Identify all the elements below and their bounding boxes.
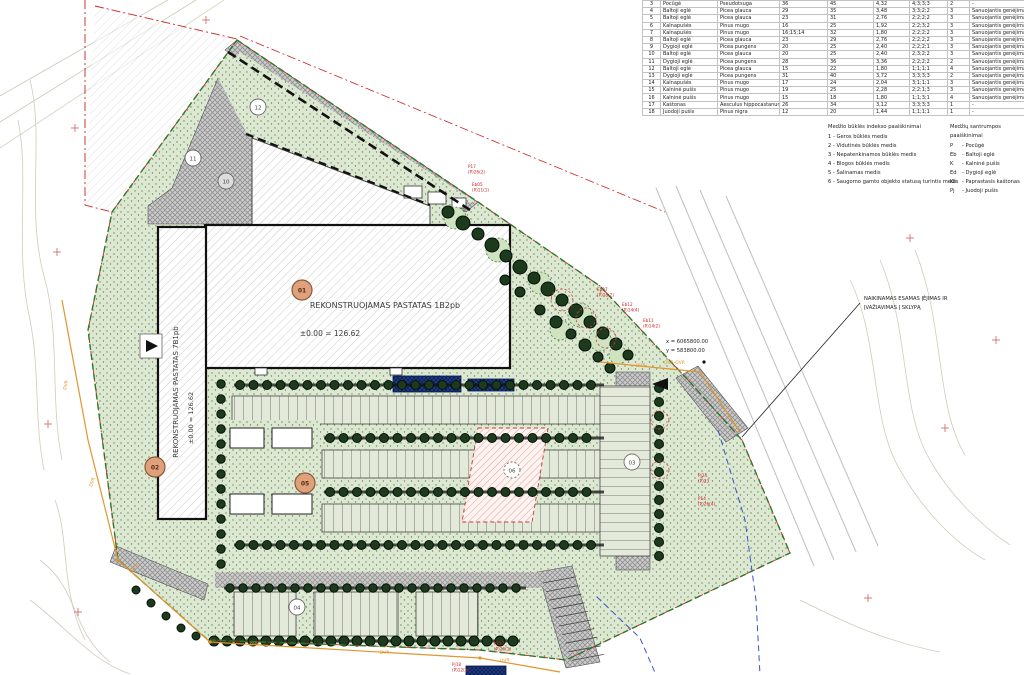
table-row: 7KalnapušėsPinus mugo16;15;14321,802;2;2… bbox=[643, 29, 1024, 36]
table-cell: Kalninė pušis bbox=[661, 94, 718, 101]
table-cell: Picea pungens bbox=[718, 72, 780, 79]
badge-06: 06 bbox=[504, 462, 520, 478]
badge-10: 10 bbox=[218, 173, 234, 189]
table-cell: Sanuojantis genėjimas bbox=[970, 51, 1024, 58]
svg-text:P14: P14 bbox=[698, 496, 706, 501]
table-cell: Picea pungens bbox=[718, 58, 780, 65]
table-cell: 25 bbox=[828, 51, 874, 58]
svg-text:(P)23: (P)23 bbox=[698, 479, 709, 484]
table-cell: 25 bbox=[828, 87, 874, 94]
table-cell: 4 bbox=[948, 94, 970, 101]
building-left-label: REKONSTRUOJAMAS PASTATAS 7B1pb bbox=[172, 326, 180, 458]
table-cell: 9 bbox=[643, 44, 661, 51]
table-cell: 1,92 bbox=[874, 22, 910, 29]
table-cell: Pinus mugo bbox=[718, 94, 780, 101]
annotation-leader bbox=[742, 303, 860, 437]
legend-item: 5 - Šalinamas medis bbox=[828, 169, 946, 178]
table-cell: Pinus mugo bbox=[718, 87, 780, 94]
site-plan-page: { "colors": { "badge_orange": "#dfa07c",… bbox=[0, 0, 1024, 675]
table-cell: 2;2;2;2 bbox=[910, 36, 948, 43]
svg-text:10: 10 bbox=[223, 180, 230, 186]
badge-12: 12 bbox=[250, 99, 266, 115]
table-cell: 3 bbox=[948, 8, 970, 15]
legend-item: K- Kalninė pušis bbox=[950, 160, 1024, 169]
table-cell: 15 bbox=[780, 65, 828, 72]
table-cell: 3 bbox=[948, 44, 970, 51]
table-row: 16Kalninė pušisPinus mugo15181,801;1;3;1… bbox=[643, 94, 1024, 101]
table-cell: Aesculus hippocastanum bbox=[718, 101, 780, 108]
table-cell: 23 bbox=[780, 36, 828, 43]
table-cell: 18 bbox=[828, 94, 874, 101]
table-cell: Pseudotsuga bbox=[718, 1, 780, 8]
table-cell: Sanuojantis genėjimas bbox=[970, 87, 1024, 94]
table-cell: 3,72 bbox=[874, 72, 910, 79]
table-cell: 8 bbox=[643, 36, 661, 43]
table-cell: 13 bbox=[643, 72, 661, 79]
svg-text:Eb05: Eb05 bbox=[472, 182, 483, 187]
legend-tree-condition: Medžio būklės indekso paaiškinimai 1 - G… bbox=[828, 123, 946, 187]
legend-abbr: K bbox=[950, 160, 962, 169]
table-cell: Sanuojantis genėjimas bbox=[970, 65, 1024, 72]
svg-text:Kš17: Kš17 bbox=[494, 641, 505, 646]
coordinate-x: x = 6065800.00 bbox=[666, 339, 708, 345]
table-cell: Kaštonas bbox=[661, 101, 718, 108]
legend-abbr: Eb bbox=[950, 151, 962, 160]
table-cell: Picea glauca bbox=[718, 65, 780, 72]
table-cell: 25 bbox=[828, 44, 874, 51]
legend-item: Kš- Paprastasis kaštonas bbox=[950, 178, 1024, 187]
table-row: 9Dygioji eglėPicea pungens20252,402;2;2;… bbox=[643, 44, 1024, 51]
badge-05: 05 bbox=[295, 473, 315, 493]
table-cell: Dygioji eglė bbox=[661, 44, 718, 51]
table-cell: 1;1;1;1 bbox=[910, 108, 948, 115]
table-cell: 36 bbox=[780, 1, 828, 8]
table-cell: 15 bbox=[780, 94, 828, 101]
building-main bbox=[205, 225, 510, 375]
table-cell: 2,40 bbox=[874, 44, 910, 51]
building-main-label: REKONSTRUOJAMAS PASTATAS 1B2pb bbox=[310, 301, 460, 310]
svg-text:(P)18(2): (P)18(2) bbox=[597, 293, 614, 298]
utility-dvr-label: DVR bbox=[380, 650, 390, 656]
table-cell: 3,48 bbox=[874, 8, 910, 15]
table-cell: 2 bbox=[948, 58, 970, 65]
legend-item: 2 - Vidutinės būklės medis bbox=[828, 142, 946, 151]
table-row: 4Baltoji eglėPicea glauca29353,483;3;2;2… bbox=[643, 8, 1024, 15]
svg-text:Eb11: Eb11 bbox=[643, 318, 654, 323]
table-cell: 6 bbox=[643, 22, 661, 29]
svg-text:(P)14(2): (P)14(2) bbox=[643, 324, 660, 329]
table-cell: 1;1;1;1 bbox=[910, 65, 948, 72]
svg-text:(P)12(1): (P)12(1) bbox=[452, 668, 469, 673]
table-cell: 3 bbox=[948, 29, 970, 36]
annotation-demolish-line2: ĮVAŽIAVIMAS Į SKLYPĄ bbox=[864, 303, 921, 311]
table-row: 15Kalninė pušisPinus mugo19252,282;2;1;3… bbox=[643, 87, 1024, 94]
legend-abbr: Kš bbox=[950, 178, 962, 187]
tree-tag: Eb11(P)14(2) bbox=[643, 318, 660, 329]
table-cell: 4 bbox=[948, 65, 970, 72]
table-row: 3PocūgėPseudotsuga36454,324;3;3;32- bbox=[643, 1, 1024, 8]
table-cell: Pocūgė bbox=[661, 1, 718, 8]
coordinate-y: y = 583800.00 bbox=[666, 348, 705, 354]
table-cell: 1 bbox=[948, 108, 970, 115]
table-cell: Sanuojantis genėjimas bbox=[970, 8, 1024, 15]
table-row: 12Baltoji eglėPicea glauca15221,801;1;1;… bbox=[643, 65, 1024, 72]
table-cell: 1,80 bbox=[874, 94, 910, 101]
tree-inventory-table: 3PocūgėPseudotsuga36454,324;3;3;32-4Balt… bbox=[642, 0, 1024, 116]
table-cell: 19 bbox=[780, 87, 828, 94]
table-cell: 17 bbox=[780, 80, 828, 87]
table-cell: 1,80 bbox=[874, 29, 910, 36]
table-cell: 3;3;3;3 bbox=[910, 101, 948, 108]
svg-text:Pj18: Pj18 bbox=[452, 662, 461, 667]
table-row: 5Baltoji eglėPicea glauca23312,762;2;2;2… bbox=[643, 15, 1024, 22]
table-cell: Kalninė pušis bbox=[661, 87, 718, 94]
table-cell: 22 bbox=[828, 65, 874, 72]
table-cell: 28 bbox=[780, 58, 828, 65]
badge-03: 03 bbox=[624, 454, 640, 470]
table-cell: Baltoji eglė bbox=[661, 51, 718, 58]
table-cell: 15 bbox=[643, 87, 661, 94]
table-cell: 2;2;2;2 bbox=[910, 15, 948, 22]
table-cell: 3,36 bbox=[874, 58, 910, 65]
tree-tag: Pj18(P)12(1) bbox=[452, 662, 469, 673]
table-cell: Sanuojantis genėjimas bbox=[970, 15, 1024, 22]
svg-text:06: 06 bbox=[509, 469, 516, 475]
table-cell: 2;2;2;2 bbox=[910, 29, 948, 36]
table-cell: Sanuojantis genėjimas bbox=[970, 94, 1024, 101]
legend-tree-abbreviations: Medžių santrumpos paaiškinimai P- Pocūgė… bbox=[950, 123, 1024, 196]
table-row: 10Baltoji eglėPicea glauca20252,402;3;2;… bbox=[643, 51, 1024, 58]
table-row: 14KalnapušėsPinus mugo17242,043;1;1;13Sa… bbox=[643, 80, 1024, 87]
table-cell: 4,32 bbox=[874, 1, 910, 8]
tree-tag: P17(P)26(2) bbox=[468, 164, 485, 175]
table-cell: Pinus nigra bbox=[718, 108, 780, 115]
svg-text:11: 11 bbox=[190, 157, 197, 163]
table-cell: 26 bbox=[780, 101, 828, 108]
table-cell: Pinus mugo bbox=[718, 80, 780, 87]
table-cell: 3 bbox=[643, 1, 661, 8]
table-cell: Sanuojantis genėjimas bbox=[970, 72, 1024, 79]
table-cell: 2,28 bbox=[874, 87, 910, 94]
table-cell: 24 bbox=[828, 80, 874, 87]
table-row: 11Dygioji eglėPicea pungens28363,362;2;2… bbox=[643, 58, 1024, 65]
svg-text:Eb07: Eb07 bbox=[597, 287, 608, 292]
tree-tag: Eb07(P)18(2) bbox=[597, 287, 614, 298]
table-cell: 40 bbox=[828, 72, 874, 79]
legend-abbr: Ed bbox=[950, 169, 962, 178]
table-cell: Sanuojantis genėjimas bbox=[970, 58, 1024, 65]
table-cell: 3;3;2;2 bbox=[910, 8, 948, 15]
coordinate-point bbox=[702, 360, 705, 363]
table-cell: 12 bbox=[780, 108, 828, 115]
table-cell: Picea pungens bbox=[718, 44, 780, 51]
table-cell: 3 bbox=[948, 15, 970, 22]
table-cell: 1,44 bbox=[874, 108, 910, 115]
badge-01: 01 bbox=[292, 280, 312, 300]
legend-item: 3 - Nepatenkinamos būklės medis bbox=[828, 151, 946, 160]
table-cell: 2 bbox=[948, 72, 970, 79]
table-row: 13Dygioji eglėPicea pungens31403,723;3;3… bbox=[643, 72, 1024, 79]
svg-text:Eb12: Eb12 bbox=[622, 302, 633, 307]
table-cell: 4 bbox=[643, 8, 661, 15]
legend-item: Eb- Baltoji eglė bbox=[950, 151, 1024, 160]
table-cell: 25 bbox=[828, 22, 874, 29]
legend-item: Pj- Juodoji pušis bbox=[950, 187, 1024, 196]
tree-tag: Eb12(P)14(4) bbox=[622, 302, 639, 313]
table-cell: 36 bbox=[828, 58, 874, 65]
table-cell: 5 bbox=[643, 15, 661, 22]
table-cell: 2;3;2;2 bbox=[910, 51, 948, 58]
svg-text:05: 05 bbox=[301, 481, 309, 488]
table-cell: Baltoji eglė bbox=[661, 8, 718, 15]
table-cell: Picea glauca bbox=[718, 8, 780, 15]
table-cell: 1,80 bbox=[874, 65, 910, 72]
table-cell: - bbox=[970, 108, 1024, 115]
table-cell: 20 bbox=[828, 108, 874, 115]
legend-abbrev-title: Medžių santrumpos paaiškinimai bbox=[950, 123, 1024, 141]
table-cell: 7 bbox=[643, 29, 661, 36]
table-cell: 4;3;3;3 bbox=[910, 1, 948, 8]
table-cell: 3 bbox=[948, 22, 970, 29]
table-cell: 1;1;3;1 bbox=[910, 94, 948, 101]
table-cell: 45 bbox=[828, 1, 874, 8]
table-cell: Kalnapušės bbox=[661, 29, 718, 36]
legend-item: Ed- Dygioji eglė bbox=[950, 169, 1024, 178]
table-row: 18Juodoji pušisPinus nigra12201,441;1;1;… bbox=[643, 108, 1024, 115]
utility-dvr-label: DVR bbox=[88, 477, 97, 488]
table-cell: 16 bbox=[780, 22, 828, 29]
tree-tag: Eb05(P)11(1) bbox=[472, 182, 489, 193]
svg-text:(P)11(1): (P)11(1) bbox=[472, 188, 489, 193]
table-cell: 3,12 bbox=[874, 101, 910, 108]
legend-item: 1 - Geros būklės medis bbox=[828, 133, 946, 142]
table-cell: Sanuojantis genėjimas bbox=[970, 44, 1024, 51]
utility-dvr-label: DVR bbox=[636, 363, 646, 369]
table-cell: 23 bbox=[780, 15, 828, 22]
table-cell: Pinus mugo bbox=[718, 29, 780, 36]
table-cell: 35 bbox=[828, 8, 874, 15]
table-cell: 31 bbox=[828, 15, 874, 22]
table-cell: 12 bbox=[643, 65, 661, 72]
table-cell: 3 bbox=[948, 80, 970, 87]
table-cell: - bbox=[970, 101, 1024, 108]
table-cell: 29 bbox=[780, 8, 828, 15]
table-cell: 3 bbox=[948, 51, 970, 58]
table-cell: Dygioji eglė bbox=[661, 72, 718, 79]
table-cell: - bbox=[970, 1, 1024, 8]
svg-text:(P)26(4): (P)26(4) bbox=[698, 502, 715, 507]
table-cell: 2,04 bbox=[874, 80, 910, 87]
table-cell: Juodoji pušis bbox=[661, 108, 718, 115]
table-cell: Picea glauca bbox=[718, 51, 780, 58]
table-cell: 11 bbox=[643, 58, 661, 65]
table-cell: 3;3;3;3 bbox=[910, 72, 948, 79]
legend-item: 6 - Saugomo gamto objekto statusą turint… bbox=[828, 178, 946, 187]
table-cell: 3;1;1;1 bbox=[910, 80, 948, 87]
table-cell: 16;15;14 bbox=[780, 29, 828, 36]
svg-text:01: 01 bbox=[298, 288, 306, 295]
table-cell: Dygioji eglė bbox=[661, 58, 718, 65]
svg-text:03: 03 bbox=[629, 461, 636, 467]
table-cell: 3 bbox=[948, 36, 970, 43]
table-cell: 18 bbox=[643, 108, 661, 115]
utility-ovr-label: OVR-OVR bbox=[664, 360, 685, 366]
legend-abbr: Pj bbox=[950, 187, 962, 196]
table-cell: 32 bbox=[828, 29, 874, 36]
utility-dvr-label: DVR bbox=[62, 380, 70, 391]
table-cell: 1 bbox=[948, 101, 970, 108]
table-cell: 2 bbox=[948, 1, 970, 8]
table-cell: Kalnapušės bbox=[661, 22, 718, 29]
utility-dvr-label: DVR bbox=[250, 641, 260, 648]
table-cell: 34 bbox=[828, 101, 874, 108]
svg-text:(P)26(2): (P)26(2) bbox=[468, 170, 485, 175]
badge-04: 04 bbox=[289, 599, 305, 615]
table-cell: 2;2;3;2 bbox=[910, 22, 948, 29]
svg-text:Pj24: Pj24 bbox=[698, 473, 707, 478]
table-cell: 17 bbox=[643, 101, 661, 108]
badge-02: 02 bbox=[145, 457, 165, 477]
table-cell: Sanuojantis genėjimas bbox=[970, 80, 1024, 87]
svg-text:02: 02 bbox=[151, 465, 159, 472]
building-main-elevation: ±0.00 = 126.62 bbox=[300, 329, 361, 338]
table-cell: Baltoji eglė bbox=[661, 36, 718, 43]
svg-text:(P)26(1): (P)26(1) bbox=[494, 647, 511, 652]
table-cell: 2,76 bbox=[874, 36, 910, 43]
utility-dvr-label: DVR bbox=[500, 657, 510, 664]
svg-text:04: 04 bbox=[294, 606, 301, 612]
table-cell: Sanuojantis genėjimas bbox=[970, 29, 1024, 36]
table-cell: Kalnapušės bbox=[661, 80, 718, 87]
table-row: 17KaštonasAesculus hippocastanum26343,12… bbox=[643, 101, 1024, 108]
table-cell: 20 bbox=[780, 44, 828, 51]
svg-text:(P)14(4): (P)14(4) bbox=[622, 308, 639, 313]
table-cell: Baltoji eglė bbox=[661, 15, 718, 22]
legend-item: P- Pocūgė bbox=[950, 142, 1024, 151]
table-cell: 2;2;2;2 bbox=[910, 58, 948, 65]
table-row: 6KalnapušėsPinus mugo16251,922;2;3;23San… bbox=[643, 22, 1024, 29]
table-row: 8Baltoji eglėPicea glauca23292,762;2;2;2… bbox=[643, 36, 1024, 43]
table-cell: Sanuojantis genėjimas bbox=[970, 22, 1024, 29]
table-cell: 29 bbox=[828, 36, 874, 43]
building-left-elevation: ±0.00 = 126.62 bbox=[187, 392, 195, 444]
svg-text:P17: P17 bbox=[468, 164, 476, 169]
legend-abbr: P bbox=[950, 142, 962, 151]
table-cell: 14 bbox=[643, 80, 661, 87]
table-cell: Pinus mugo bbox=[718, 22, 780, 29]
table-cell: 2;2;2;1 bbox=[910, 44, 948, 51]
table-cell: 20 bbox=[780, 51, 828, 58]
table-cell: 2,40 bbox=[874, 51, 910, 58]
annotation-demolish-line1: NAIKINAMAS ESAMAS ĮĖJIMAS IR bbox=[864, 295, 948, 302]
table-cell: 2;2;1;3 bbox=[910, 87, 948, 94]
table-cell: 16 bbox=[643, 94, 661, 101]
table-cell: 10 bbox=[643, 51, 661, 58]
table-cell: Picea glauca bbox=[718, 15, 780, 22]
table-cell: Picea glauca bbox=[718, 36, 780, 43]
badge-11: 11 bbox=[185, 150, 201, 166]
table-cell: 3 bbox=[948, 87, 970, 94]
table-cell: Baltoji eglė bbox=[661, 65, 718, 72]
legend-item: 4 - Blogos būklės medis bbox=[828, 160, 946, 169]
table-cell: Sanuojantis genėjimas bbox=[970, 36, 1024, 43]
legend-condition-title: Medžio būklės indekso paaiškinimai bbox=[828, 123, 946, 132]
svg-text:12: 12 bbox=[255, 106, 262, 112]
table-cell: 2,76 bbox=[874, 15, 910, 22]
table-cell: 31 bbox=[780, 72, 828, 79]
